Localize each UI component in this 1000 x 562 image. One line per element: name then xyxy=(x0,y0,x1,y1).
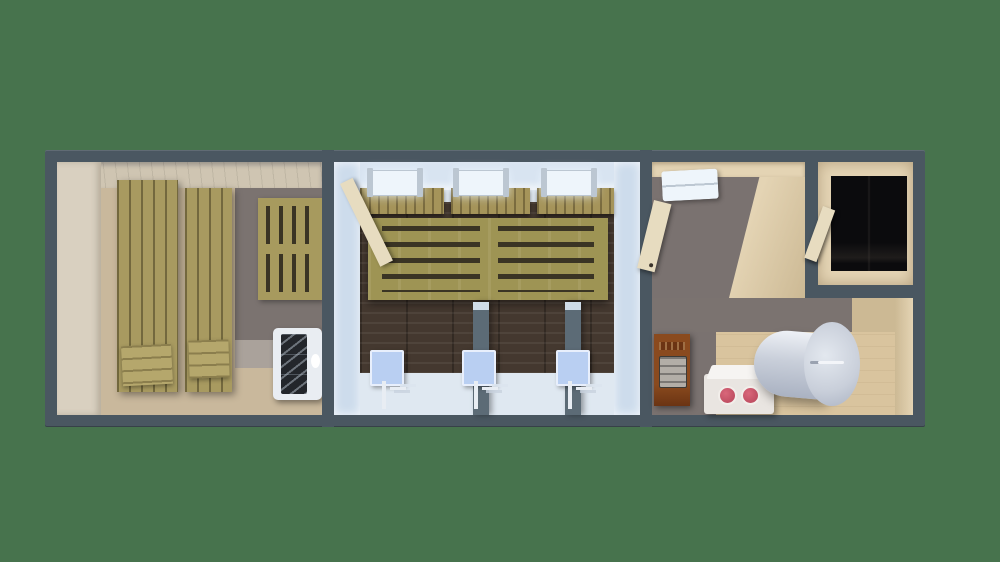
wall-entry-boiler xyxy=(805,285,913,298)
wall-shower-hall xyxy=(640,150,652,427)
ceiling-light-3 xyxy=(542,170,596,196)
shower-head-1 xyxy=(370,350,404,386)
backrest-slots xyxy=(266,206,314,244)
backrest-slots xyxy=(266,254,314,292)
hall-corner-wall xyxy=(710,177,805,298)
shower-head-3 xyxy=(556,350,590,386)
ceiling-light-1 xyxy=(368,170,422,196)
ceiling-light-2 xyxy=(454,170,508,196)
bench-slots xyxy=(382,226,480,292)
heater-knob xyxy=(311,354,320,368)
wood-stove xyxy=(654,334,690,406)
lounger-bench-1 xyxy=(117,180,178,392)
shower-pipe-1 xyxy=(382,381,386,409)
slatted-backrest-panel xyxy=(258,198,322,300)
shower-pipe-3 xyxy=(568,381,572,409)
hall-ceiling-light xyxy=(661,169,718,202)
sauna-left-wall xyxy=(57,162,101,415)
room-boiler xyxy=(652,298,913,415)
right-section xyxy=(652,162,913,415)
shower-faucet-3 xyxy=(576,387,592,390)
shower-faucet-1 xyxy=(390,387,406,390)
sauna-heater xyxy=(273,328,322,400)
dark-floor xyxy=(831,176,907,271)
bench-slots xyxy=(498,226,594,292)
bench-headrest xyxy=(188,339,229,378)
room-sauna xyxy=(57,162,322,415)
shower-pipe-2 xyxy=(474,381,478,409)
shower-right-wall xyxy=(614,162,640,415)
wall-sauna-shower xyxy=(322,150,334,427)
building-frame xyxy=(45,150,925,427)
stove-door xyxy=(659,356,687,388)
water-boiler-tank xyxy=(754,322,860,406)
boiler-right-wall xyxy=(895,298,913,415)
bench-headrest xyxy=(121,344,173,387)
room-hallway xyxy=(652,162,805,298)
heater-stone-grille xyxy=(281,334,307,394)
tank-handle xyxy=(818,361,844,364)
shower-faucet-2 xyxy=(482,387,498,390)
floor-plan-canvas xyxy=(0,0,1000,562)
red-knob-1 xyxy=(718,386,737,405)
room-entry-dark xyxy=(818,162,913,285)
room-shower xyxy=(334,162,640,415)
slatted-bench xyxy=(368,218,608,300)
lounger-bench-2 xyxy=(185,188,232,392)
stove-vent xyxy=(659,342,685,350)
shower-head-2 xyxy=(462,350,496,386)
tank-end-cap xyxy=(804,322,860,406)
